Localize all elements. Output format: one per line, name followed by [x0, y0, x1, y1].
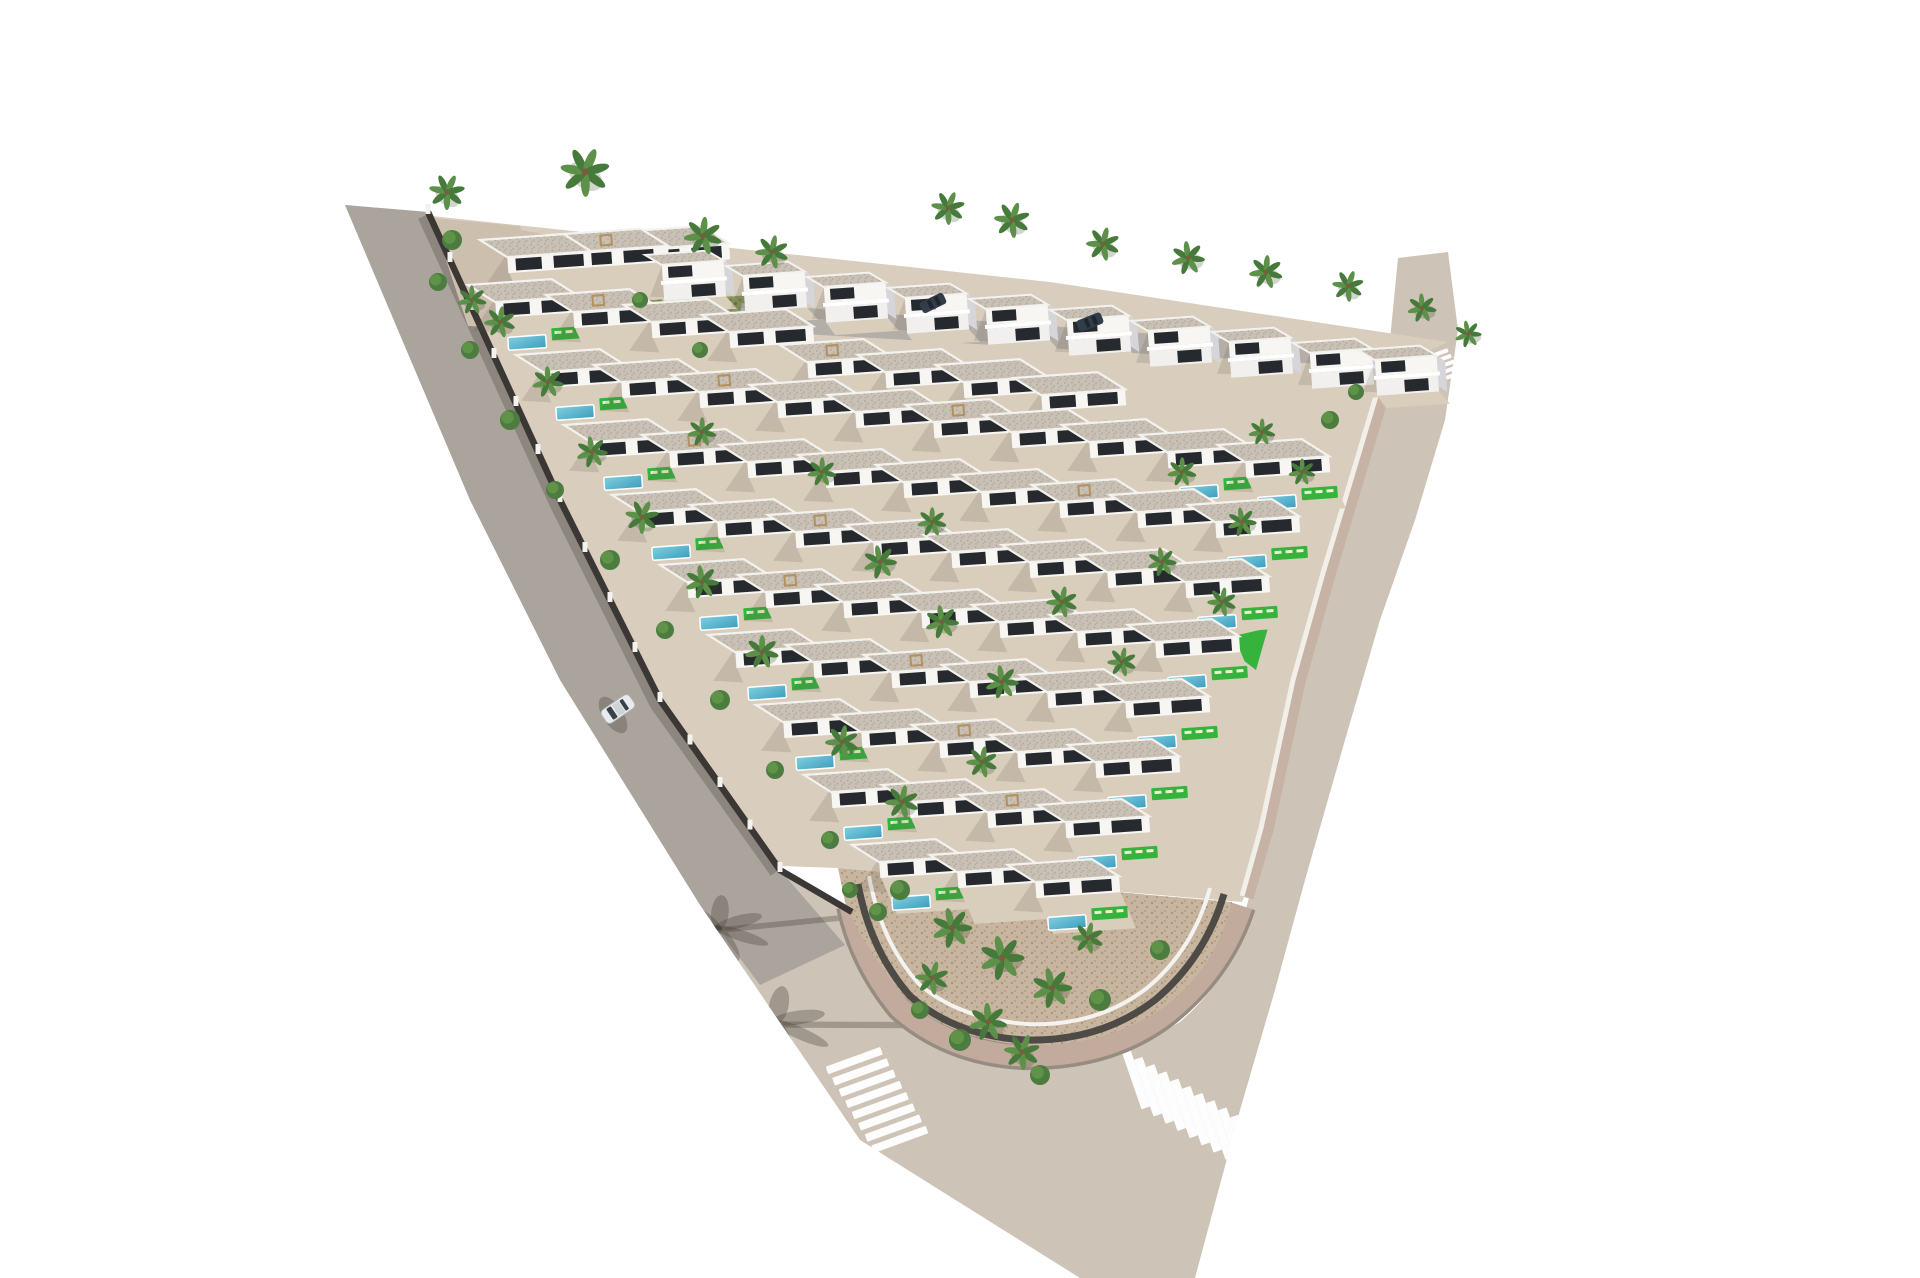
villa-window: [785, 402, 812, 416]
duplex-window: [853, 305, 878, 319]
sun-lounger: [1105, 910, 1112, 913]
sun-lounger: [1184, 731, 1191, 734]
wall-pillar: [514, 396, 519, 406]
villa-window: [1019, 432, 1046, 446]
wall-pillar: [658, 692, 663, 702]
villa-window: [659, 322, 686, 336]
villa-window: [1261, 519, 1292, 533]
pool: [844, 825, 883, 841]
duplex-window: [772, 294, 797, 308]
wall-pillar: [718, 777, 723, 787]
pool: [748, 685, 787, 701]
sun-lounger: [1214, 671, 1221, 674]
sun-lounger: [1274, 551, 1281, 554]
bush: [869, 903, 887, 921]
palm-tree: [924, 184, 971, 232]
palm-tree: [1080, 221, 1125, 267]
duplex-window: [1235, 342, 1260, 355]
villa-window: [1081, 879, 1112, 893]
sun-lounger: [1124, 851, 1131, 854]
villa-window: [1055, 692, 1082, 706]
pool: [508, 335, 547, 351]
sun-lounger: [1165, 790, 1172, 793]
villa-window: [995, 812, 1022, 826]
villa-window: [1087, 392, 1118, 406]
wall-pillar: [633, 642, 638, 652]
sun-lounger: [1206, 729, 1213, 732]
wall-pillar: [608, 592, 613, 602]
wall-pillar: [748, 820, 753, 830]
palm-tree: [550, 137, 620, 207]
villa-window: [1115, 572, 1142, 586]
sun-lounger: [1225, 670, 1232, 673]
villa-window: [1163, 642, 1190, 656]
duplex-window: [992, 309, 1017, 322]
duplex-window: [668, 265, 693, 278]
sun-lounger: [1135, 850, 1142, 853]
bush: [766, 761, 784, 779]
villa-window: [737, 332, 764, 346]
villa-window: [1141, 759, 1172, 773]
palm-tree: [987, 195, 1037, 245]
bush: [442, 230, 462, 250]
villa-window: [869, 732, 896, 746]
villa-window: [887, 862, 914, 876]
villa-window: [1171, 699, 1202, 713]
villa-window: [911, 482, 938, 496]
villa-window: [893, 372, 920, 386]
pool: [700, 615, 739, 631]
bush: [821, 831, 839, 849]
villa-window: [1073, 822, 1100, 836]
sun-lounger: [1154, 791, 1161, 794]
sun-lounger: [1236, 669, 1243, 672]
bush: [632, 292, 648, 308]
pool: [556, 405, 595, 421]
sun-lounger: [1304, 491, 1311, 494]
bush: [692, 342, 708, 358]
villa-window: [947, 742, 974, 756]
duplex-window: [1339, 371, 1364, 385]
villa-window: [1253, 462, 1280, 476]
sun-lounger: [1315, 490, 1322, 493]
palm-tree: [1326, 264, 1370, 308]
sun-lounger: [1266, 609, 1273, 612]
bush: [1030, 1065, 1050, 1085]
villa-window: [803, 532, 830, 546]
villa-window: [725, 522, 752, 536]
duplex-window: [1154, 331, 1179, 344]
villa-window: [1007, 622, 1034, 636]
villa-window: [1067, 502, 1094, 516]
sun-lounger: [1195, 730, 1202, 733]
duplex-window: [1177, 349, 1202, 363]
bush: [1150, 940, 1170, 960]
villa-window: [899, 672, 926, 686]
bush: [461, 341, 479, 359]
sun-lounger: [1176, 789, 1183, 792]
villa-window: [1085, 632, 1112, 646]
duplex-window: [1381, 360, 1406, 373]
villa-window: [1049, 395, 1076, 409]
bush: [842, 882, 858, 898]
villa-window: [917, 802, 944, 816]
villa-window: [775, 329, 806, 343]
sun-lounger: [1296, 549, 1303, 552]
duplex-window: [1015, 327, 1040, 341]
duplex-window: [691, 283, 716, 297]
villa-window: [863, 412, 890, 426]
villa-window: [629, 382, 656, 396]
palm-tree: [1245, 251, 1288, 294]
duplex-window: [1316, 353, 1341, 366]
palm-tree: [1454, 320, 1482, 348]
bush: [656, 621, 674, 639]
wall-pillar: [583, 542, 588, 552]
bush: [429, 273, 447, 291]
villa-development-render: [0, 0, 1920, 1278]
villa-window: [1037, 562, 1064, 576]
villa-window: [959, 552, 986, 566]
wall-pillar: [688, 735, 693, 745]
villa-window: [791, 722, 818, 736]
bush: [1348, 384, 1364, 400]
villa-window: [755, 462, 782, 476]
villa-window: [815, 362, 842, 376]
sun-lounger: [1146, 849, 1153, 852]
villa-window: [833, 472, 860, 486]
villa-window: [1097, 442, 1124, 456]
duplex-window: [934, 316, 959, 330]
villa-window: [1043, 882, 1070, 896]
wall-pillar: [492, 348, 497, 358]
villa-window: [941, 422, 968, 436]
villa-window: [707, 392, 734, 406]
pool: [652, 545, 691, 561]
bush: [1321, 411, 1339, 429]
duplex-window: [1258, 360, 1283, 374]
wall-pillar: [448, 252, 453, 262]
villa-window: [1201, 639, 1232, 653]
aerial-render-canvas: [0, 0, 1920, 1278]
villa-window: [677, 452, 704, 466]
villa-window: [1103, 762, 1130, 776]
villa-window: [515, 257, 542, 271]
bush: [949, 1029, 971, 1051]
villa-window: [773, 592, 800, 606]
bush: [546, 481, 564, 499]
sun-lounger: [1255, 610, 1262, 613]
sun-lounger: [1116, 909, 1123, 912]
sun-lounger: [1244, 611, 1251, 614]
bush: [911, 1001, 929, 1019]
villa-window: [1231, 579, 1262, 593]
wall-pillar: [426, 204, 431, 214]
bush: [890, 880, 910, 900]
villa-window: [1025, 752, 1052, 766]
villa-window: [989, 492, 1016, 506]
duplex-window: [1096, 338, 1121, 352]
bush: [600, 550, 620, 570]
villa-window: [503, 302, 530, 316]
duplex-window: [830, 287, 855, 300]
villa-window: [581, 312, 608, 326]
palm-tree: [1170, 239, 1207, 277]
villa-window: [1111, 819, 1142, 833]
wall-pillar: [536, 444, 541, 454]
villa-window: [851, 602, 878, 616]
pool: [796, 755, 835, 771]
duplex-window: [1404, 378, 1429, 392]
villa-window: [971, 382, 998, 396]
villa-window: [553, 254, 584, 268]
villa-window: [965, 872, 992, 886]
bush: [500, 410, 520, 430]
pool: [604, 475, 643, 491]
villa-window: [821, 662, 848, 676]
villa-window: [1175, 452, 1202, 466]
sun-lounger: [1285, 550, 1292, 553]
villa-window: [1145, 512, 1172, 526]
villa-window: [839, 792, 866, 806]
sun-lounger: [1094, 911, 1101, 914]
bush: [1089, 989, 1111, 1011]
villa-window: [1133, 702, 1160, 716]
duplex-window: [749, 276, 774, 289]
wall-pillar: [778, 862, 783, 872]
sun-lounger: [1326, 489, 1333, 492]
bush: [710, 690, 730, 710]
